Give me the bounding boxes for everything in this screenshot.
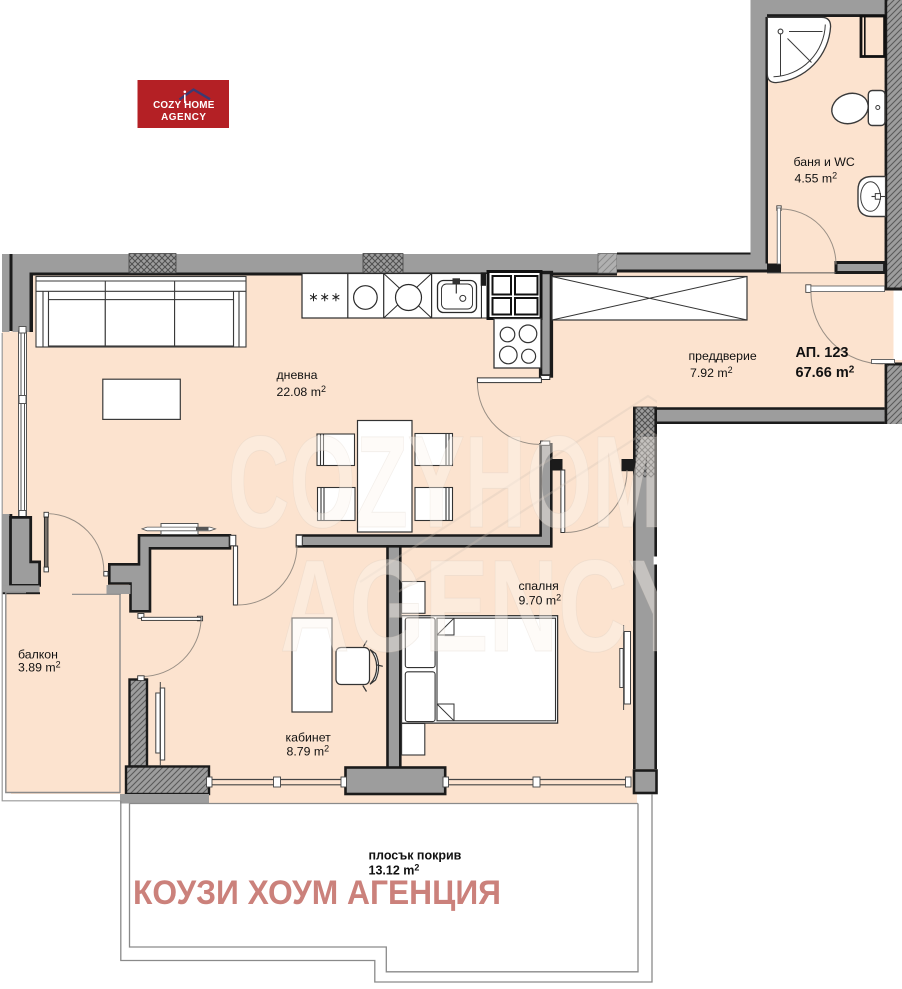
svg-text:9.70 m2: 9.70 m2 <box>519 593 562 608</box>
svg-text:67.66 m2: 67.66 m2 <box>796 365 855 382</box>
svg-text:AGENCY: AGENCY <box>280 532 692 679</box>
svg-text:AGENCY: AGENCY <box>161 112 206 123</box>
svg-text:4.55 m2: 4.55 m2 <box>795 171 838 186</box>
svg-text:7.92 m2: 7.92 m2 <box>690 365 733 380</box>
svg-text:баня и WC: баня и WC <box>794 155 855 169</box>
svg-text:3.89 m2: 3.89 m2 <box>18 660 61 675</box>
svg-text:22.08 m2: 22.08 m2 <box>277 384 326 399</box>
svg-text:преддверие: преддверие <box>689 349 757 363</box>
svg-text:COZY HOME: COZY HOME <box>153 100 215 111</box>
svg-text:дневна: дневна <box>277 368 318 382</box>
svg-text:кабинет: кабинет <box>286 731 332 745</box>
svg-text:спалня: спалня <box>519 579 559 593</box>
svg-text:плосък покрив: плосък покрив <box>369 849 462 863</box>
svg-text:балкон: балкон <box>18 648 58 662</box>
svg-text:8.79 m2: 8.79 m2 <box>287 744 330 759</box>
svg-text:АП. 123: АП. 123 <box>796 345 849 361</box>
svg-text:КОУЗИ ХОУМ АГЕНЦИЯ: КОУЗИ ХОУМ АГЕНЦИЯ <box>133 874 501 912</box>
